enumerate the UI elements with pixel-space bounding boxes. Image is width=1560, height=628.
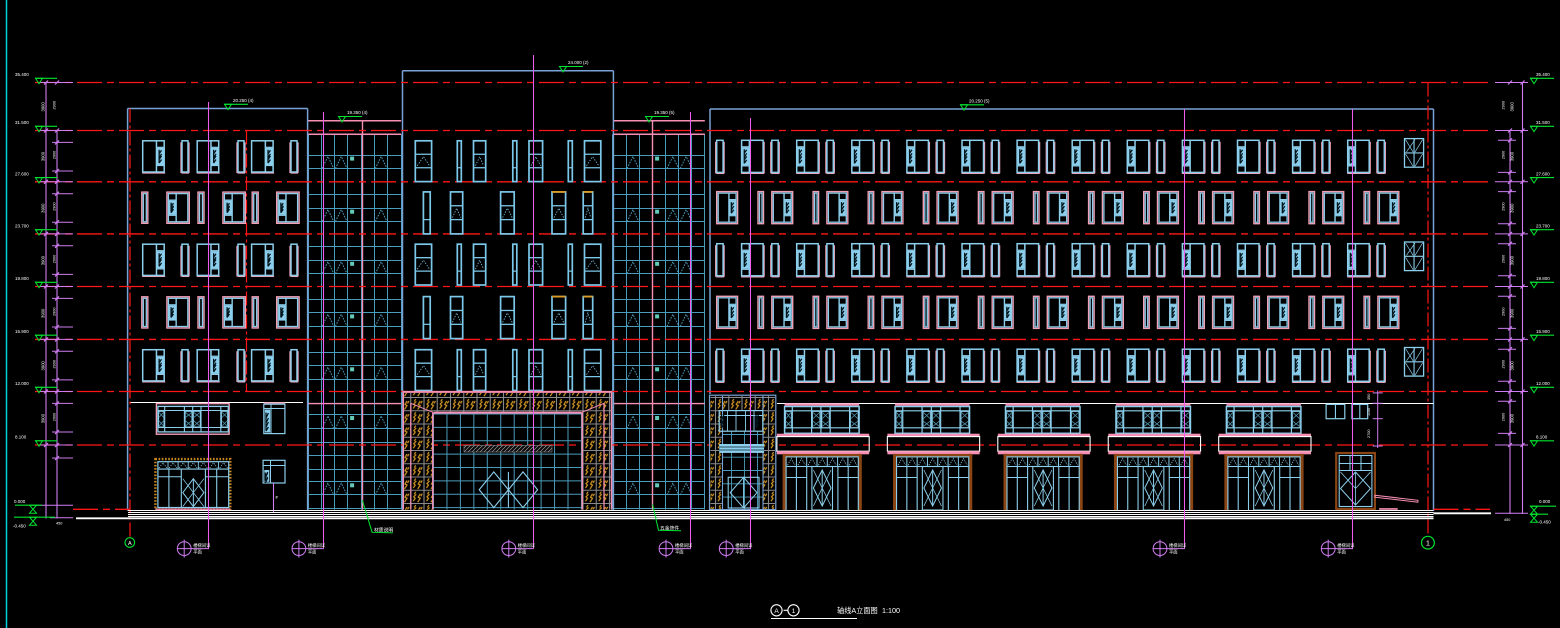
svg-text:楼梯间详: 楼梯间详 bbox=[193, 542, 211, 549]
svg-text:8.100: 8.100 bbox=[15, 435, 27, 440]
svg-text:35.400: 35.400 bbox=[15, 72, 29, 77]
svg-text:31.500: 31.500 bbox=[15, 120, 29, 125]
svg-text:楼梯间详: 楼梯间详 bbox=[308, 542, 326, 549]
svg-text:15.900: 15.900 bbox=[1536, 329, 1550, 334]
svg-text:A: A bbox=[128, 541, 132, 547]
svg-text:3900: 3900 bbox=[1510, 255, 1515, 265]
svg-text:楼梯间详: 楼梯间详 bbox=[675, 542, 693, 549]
svg-text:19.350 (4): 19.350 (4) bbox=[347, 110, 368, 115]
svg-text:楼梯间详: 楼梯间详 bbox=[518, 542, 536, 549]
svg-text:3900: 3900 bbox=[1510, 308, 1515, 318]
svg-text:2900: 2900 bbox=[53, 151, 57, 159]
svg-text:0.000: 0.000 bbox=[1539, 499, 1551, 504]
svg-text:2900: 2900 bbox=[53, 255, 57, 263]
svg-text:2900: 2900 bbox=[1502, 307, 1506, 315]
svg-text:-0.450: -0.450 bbox=[1538, 520, 1551, 525]
svg-text:2900: 2900 bbox=[53, 307, 57, 315]
svg-text:材质说明: 材质说明 bbox=[374, 527, 393, 534]
svg-text:A: A bbox=[774, 608, 779, 615]
svg-text:1:100: 1:100 bbox=[882, 606, 900, 615]
svg-text:楼梯间详: 楼梯间详 bbox=[1169, 542, 1187, 549]
svg-text:450: 450 bbox=[56, 522, 62, 526]
svg-text:8.100: 8.100 bbox=[1536, 435, 1548, 440]
svg-text:3900: 3900 bbox=[1510, 360, 1515, 370]
svg-text:19.350 (5): 19.350 (5) bbox=[654, 110, 675, 115]
svg-text:3900: 3900 bbox=[41, 308, 46, 318]
svg-text:3900: 3900 bbox=[41, 102, 46, 112]
svg-text:楼梯间详: 楼梯间详 bbox=[735, 542, 753, 549]
svg-text:2900: 2900 bbox=[1502, 101, 1506, 109]
svg-text:3900: 3900 bbox=[41, 413, 46, 423]
svg-text:3900: 3900 bbox=[41, 255, 46, 265]
svg-text:2900: 2900 bbox=[53, 101, 57, 109]
svg-text:3900: 3900 bbox=[1510, 102, 1515, 112]
svg-text:31.500: 31.500 bbox=[1536, 120, 1550, 125]
svg-text:2900: 2900 bbox=[1502, 413, 1506, 421]
svg-text:楼梯间详: 楼梯间详 bbox=[1337, 542, 1355, 549]
svg-text:2900: 2900 bbox=[1502, 151, 1506, 159]
svg-text:2900: 2900 bbox=[53, 202, 57, 210]
svg-text:3900: 3900 bbox=[1510, 413, 1515, 423]
svg-text:27.600: 27.600 bbox=[15, 171, 29, 176]
svg-text:1: 1 bbox=[792, 608, 796, 615]
svg-text:27.600: 27.600 bbox=[1536, 171, 1550, 176]
svg-text:1: 1 bbox=[1426, 539, 1430, 548]
svg-text:2900: 2900 bbox=[1502, 360, 1506, 368]
svg-text:五金饰件: 五金饰件 bbox=[660, 525, 679, 532]
svg-text:2900: 2900 bbox=[1502, 255, 1506, 263]
svg-text:35.400: 35.400 bbox=[1536, 72, 1550, 77]
svg-text:2700: 2700 bbox=[1367, 430, 1371, 438]
svg-text:2900: 2900 bbox=[53, 360, 57, 368]
svg-text:15.900: 15.900 bbox=[15, 329, 29, 334]
svg-text:20.250 (5): 20.250 (5) bbox=[969, 99, 990, 104]
svg-text:3900: 3900 bbox=[1510, 203, 1515, 213]
svg-text:3900: 3900 bbox=[41, 151, 46, 161]
svg-text:1150: 1150 bbox=[1367, 408, 1371, 416]
svg-text:-0.450: -0.450 bbox=[13, 524, 26, 529]
svg-text:24.000 (2): 24.000 (2) bbox=[568, 60, 589, 65]
svg-text:23.700: 23.700 bbox=[1536, 223, 1550, 228]
svg-text:19.800: 19.800 bbox=[15, 276, 29, 281]
svg-text:3900: 3900 bbox=[41, 203, 46, 213]
svg-text:450: 450 bbox=[1504, 518, 1510, 522]
svg-text:20.250 (4): 20.250 (4) bbox=[233, 98, 254, 103]
svg-text:2900: 2900 bbox=[1502, 202, 1506, 210]
svg-text:3900: 3900 bbox=[1510, 151, 1515, 161]
svg-text:19.800: 19.800 bbox=[1536, 276, 1550, 281]
svg-text:23.700: 23.700 bbox=[15, 223, 29, 228]
svg-text:12.000: 12.000 bbox=[1536, 381, 1550, 386]
svg-text:轴线A立面图: 轴线A立面图 bbox=[837, 606, 878, 615]
svg-text:350: 350 bbox=[1367, 394, 1371, 400]
svg-text:3900: 3900 bbox=[41, 360, 46, 370]
svg-text:F: F bbox=[276, 495, 279, 500]
svg-text:12.000: 12.000 bbox=[15, 381, 29, 386]
svg-text:0.000: 0.000 bbox=[14, 499, 26, 504]
svg-text:2900: 2900 bbox=[53, 413, 57, 421]
